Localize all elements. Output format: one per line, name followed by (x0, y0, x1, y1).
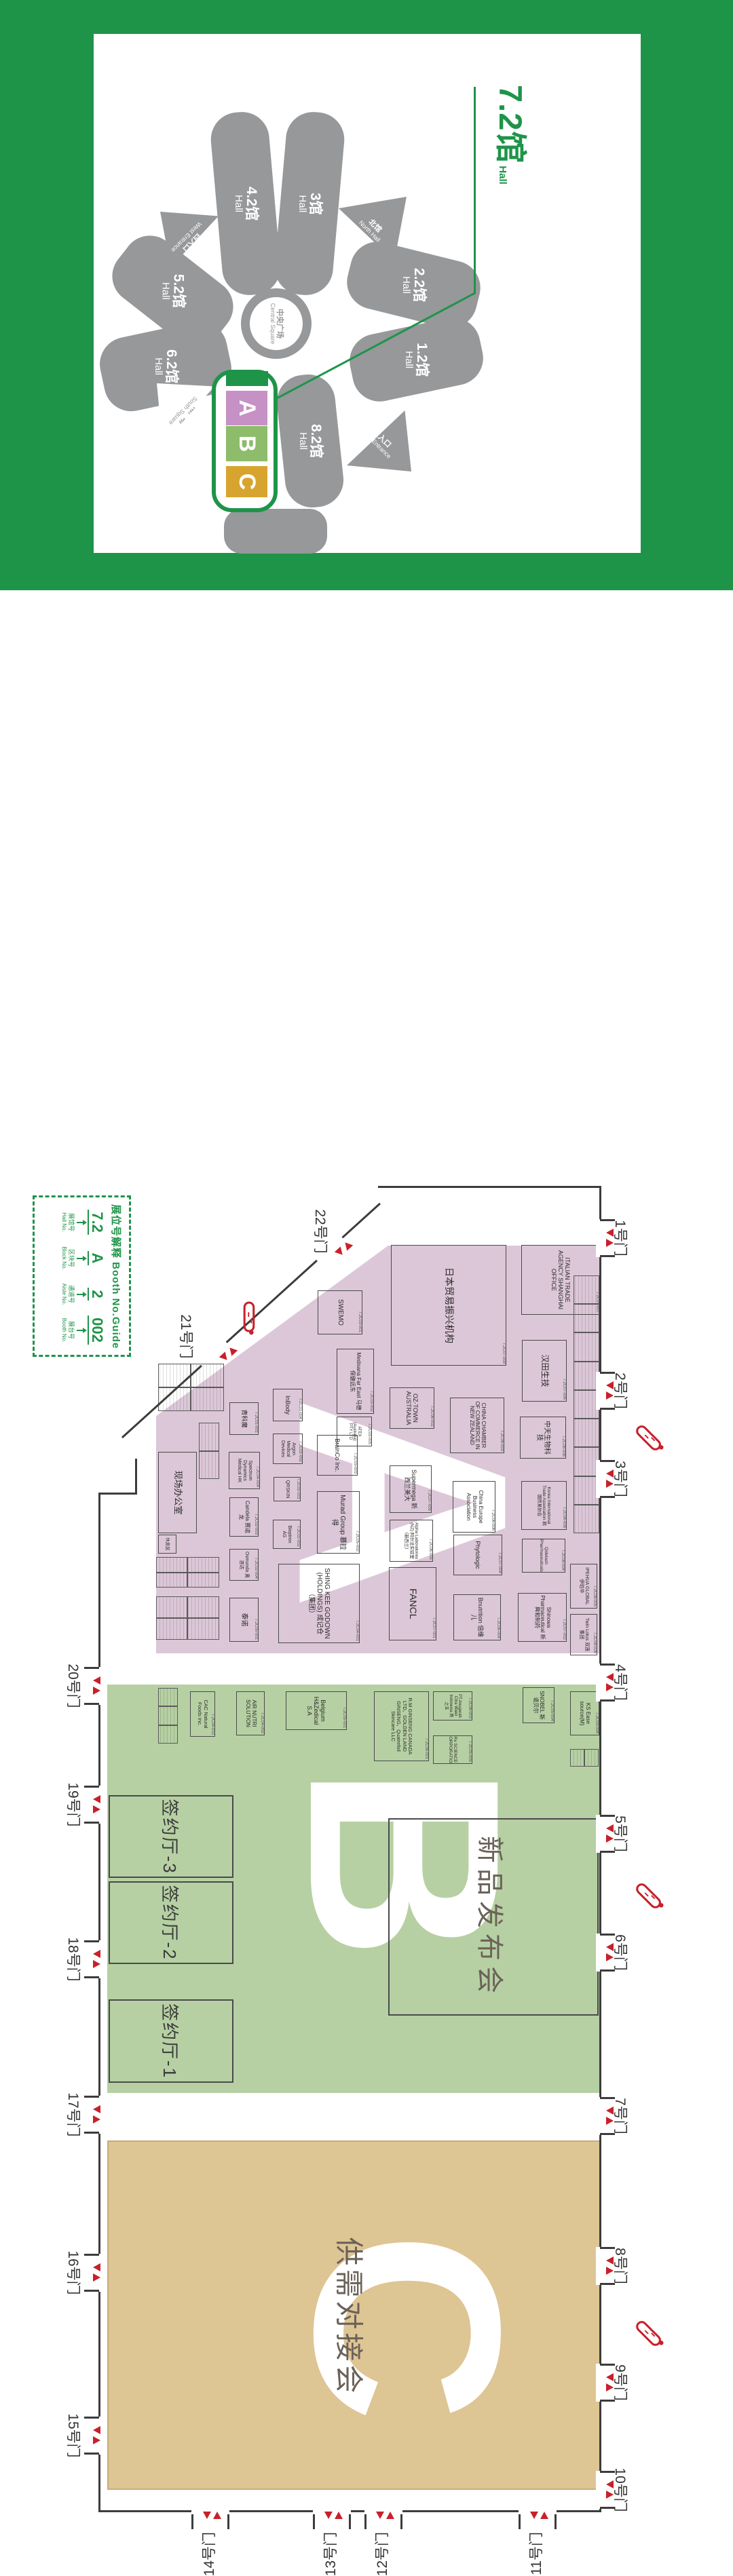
small-booth (188, 1596, 220, 1618)
gate-label: 14号门 (198, 2532, 219, 2576)
gate-label: 5号门 (611, 1815, 631, 1852)
gate-gap (596, 2247, 605, 2285)
booth: AIR NUTRI SOLUTION7.2C04-002 (236, 1691, 265, 1735)
booth-name: Bioptron AG (281, 1520, 293, 1548)
gate-label: 20号门 (64, 1664, 84, 1708)
booth: SWEMO7.2C03-001 (318, 1290, 362, 1334)
hall-title-en: Hall (497, 166, 508, 185)
booth-name: Shinowa Pharmaceutical 新興和制药 (533, 1594, 552, 1641)
booth: Shinowa Pharmaceutical 新興和制药7.2C07-002 (518, 1593, 567, 1642)
booth-number: 7.2C07-001 (432, 1617, 436, 1638)
booth-name: Alpha Laboratories (NZ) 阿尔法实验室（新西兰） (403, 1520, 419, 1561)
gate-gap (596, 2471, 605, 2509)
booth: China Europe Business Association7.2C06-… (453, 1481, 495, 1533)
booth: CAC Natural Foods Inc.7.2C04-010 (190, 1691, 215, 1737)
escalator-icon (634, 1879, 665, 1910)
booth-number: 7.2C01-004 (298, 1398, 302, 1419)
booth-number: 7.2C04-001 (355, 1620, 359, 1641)
small-booth (158, 1688, 178, 1706)
booth: Osmunda 奥咨达7.2C02-004 (229, 1549, 259, 1581)
gate-arrows-icon (93, 2263, 100, 2282)
gate-tick (84, 1667, 99, 1669)
booth-number: 7.2C08-005 (593, 1585, 597, 1607)
small-booth (574, 1332, 599, 1361)
booth-name: Candela 赛诺龙 (238, 1498, 251, 1536)
gate-gap (596, 2364, 605, 2402)
gate-gap (596, 1219, 605, 1257)
booth-number: 7.2C06-006 (491, 1510, 495, 1531)
booth-number: 7.2C06-002 (430, 1406, 434, 1427)
gate-tick (519, 2514, 521, 2529)
booth-number: 7.2C04-010 (210, 1714, 214, 1735)
small-booth (158, 1706, 178, 1725)
legend-title: 展位号解释 Booth No.Guide (109, 1204, 124, 1348)
booth: SNOBEL 斯诺贝尔7.2C05-004 (523, 1687, 555, 1723)
booth: ATEX (Australia) PTY LTD7.2C03-005 (337, 1417, 372, 1446)
booth-name: ATEX (Australia) PTY LTD (347, 1417, 362, 1446)
wall-segment (378, 1186, 601, 1188)
southeast-blob (224, 509, 327, 554)
hall-7-2-entrance-nub (226, 371, 268, 386)
booth: Alpha Laboratories (NZ) 阿尔法实验室（新西兰）7.2C0… (390, 1520, 433, 1562)
wall-segment (98, 1493, 100, 2512)
gate-label: 7号门 (611, 2098, 631, 2134)
gate-label: 15号门 (64, 2413, 84, 2457)
gate-tick (84, 1703, 99, 1705)
small-booth (156, 1573, 188, 1588)
booth-name: Qidelash Pharmaceuticals (538, 1539, 550, 1573)
gate-arrows-icon (93, 1795, 100, 1813)
small-booth (158, 1725, 178, 1744)
gate-label: 6号门 (611, 1934, 631, 1971)
overview-card: 3馆Hall4.2馆Hall2.2馆Hall1.2馆Hall8.2馆Hall5.… (94, 34, 641, 553)
title-underline (474, 87, 476, 294)
small-booth (199, 1451, 219, 1480)
booth-name: CAC Natural Foods Inc. (196, 1692, 209, 1736)
small-booth (574, 1505, 599, 1533)
small-booth (191, 1364, 225, 1387)
gate-tick (84, 1822, 99, 1824)
booth: FANCL7.2C07-001 (389, 1567, 436, 1640)
gate-tick (364, 2514, 366, 2529)
hall-label: 3馆Hall (297, 193, 322, 215)
wall-segment (98, 1493, 137, 1495)
booth: Korea International Trade Association 韩国… (521, 1481, 567, 1530)
gate-arrows-icon (335, 1239, 353, 1257)
booth-name: Murad Group 慕拉得 (330, 1492, 346, 1553)
gate-label: 1号门 (611, 1220, 631, 1256)
gate-arrows-icon (93, 2105, 100, 2123)
gate-label: 18号门 (64, 1937, 84, 1981)
central-square: 中央广场 Central Square (241, 288, 312, 359)
gate-gap (596, 1460, 605, 1498)
booth: 休息区 (158, 1535, 176, 1554)
hall-shape-4.2馆: 4.2馆Hall (208, 110, 282, 297)
booth-name: 中天生物科技 (535, 1417, 551, 1458)
small-booth (574, 1419, 599, 1447)
booth-name: Korea International Trade Association 韩国… (536, 1482, 552, 1529)
booth: 汉田生技7.2C07-006 (522, 1340, 567, 1402)
event-text: 供需对接会 (331, 2237, 372, 2396)
booth: Supermega 新西兰美大7.2C07-005 (390, 1465, 432, 1513)
booth: Bnutrition 倍维儿7.2C06-004 (453, 1594, 501, 1640)
gate-arrows-icon (93, 2426, 100, 2444)
booth-name: Phytologic (474, 1539, 482, 1571)
booth-number: 7.2C03-005 (367, 1423, 371, 1444)
gate-label: 21号门 (176, 1314, 197, 1358)
booth-number: 7.2C01-001 (254, 1412, 258, 1433)
booth-number: 7.2C07-005 (427, 1490, 431, 1511)
entrance-东入口: 东入口East Entrance (347, 410, 411, 472)
gate-arrows-icon (530, 2512, 548, 2519)
booth-name: SNOBEL 斯诺贝尔 (532, 1688, 546, 1723)
booth: Bioptron AG7.2C02-002 (273, 1520, 301, 1549)
booth-name: Rx SCIENCE CORPORATION (447, 1735, 459, 1764)
small-booth (188, 1557, 220, 1573)
booth-number: 7.2C08-006 (561, 1436, 565, 1457)
booth-number: 7.2C03-003 (353, 1453, 357, 1474)
small-booth (156, 1557, 188, 1573)
gate-tick (313, 2514, 315, 2529)
booth-number: 7.2C08-008 (562, 1507, 566, 1528)
booth-name: Spectrum Dynamics Medical HK (236, 1453, 252, 1488)
booth: R.M GINSENG CANADA LTD、GOLDEN LAND GINSE… (374, 1691, 429, 1761)
booth: CHINA CHAMBER OF COMMERCE IN NEW ZEALAND… (450, 1398, 504, 1453)
gate-gap (596, 1664, 605, 1702)
booth: Phytologic7.2C07-004 (453, 1535, 502, 1575)
gate-tick (84, 1976, 99, 1978)
booth-number: 7.2C02-001 (296, 1478, 300, 1499)
booth-number: 7.2C05-004 (550, 1700, 554, 1721)
gate-gap (596, 2097, 605, 2135)
gate-tick (84, 2132, 99, 2134)
booth-number: 7.2C07-009 (502, 1343, 506, 1364)
gate-label: 9号门 (611, 2364, 631, 2401)
overview-zone-badge-A: A (226, 391, 267, 425)
booth-name: China Europe Business Association (464, 1482, 484, 1532)
booth-name: 现场办公室 (172, 1469, 183, 1516)
gate-tick (400, 2514, 402, 2529)
booth-name: ITALIAN TRADE AGENCY SHANGHAI OFFICE (550, 1246, 571, 1314)
booth-number-legend: 展位号解释 Booth No.Guide 7.2展馆号Hall No.A区块号B… (33, 1195, 131, 1357)
small-booth (570, 1749, 584, 1767)
booth-name: Belgium H&Zedical S.A (305, 1692, 327, 1729)
booth-name: 汉田生技 (539, 1353, 549, 1388)
wall-segment (135, 1459, 137, 1495)
booth-number: 7.2C06-003 (468, 1697, 472, 1718)
small-booth (188, 1618, 220, 1640)
gate-label: 10号门 (611, 2467, 631, 2512)
small-booth (156, 1596, 188, 1618)
signing-room: 签约厅-1 (109, 1999, 233, 2083)
booth-number: 7.2C06-001 (424, 1738, 428, 1759)
booth: OZ-TOWN AUSTRALIA7.2C06-002 (390, 1387, 434, 1429)
entrance-label: 南广场South Square (168, 396, 204, 432)
booth-name: Twin Lotus 双莲集团 (578, 1615, 590, 1655)
hall-label: 6.2馆Hall (153, 349, 178, 383)
gate-arrows-icon (93, 1950, 100, 1968)
zone-letter-C: C (276, 2231, 540, 2423)
gate-tick (349, 2514, 351, 2529)
hall-label: 4.2馆Hall (233, 187, 259, 220)
booth-number: 7.2C07-004 (497, 1552, 502, 1573)
hall-label: 2.2馆Hall (401, 268, 427, 302)
booth-number: 7.2C06-005 (428, 1539, 432, 1560)
booth-number: 7.2C03-001 (358, 1311, 362, 1332)
booth-name: 泰诺 (240, 1612, 248, 1628)
booth: Rx SCIENCE CORPORATION7.2C05-005 (433, 1735, 472, 1764)
gate-label: 16号门 (64, 2250, 84, 2294)
entrance-label: 东入口East Entrance (360, 423, 398, 460)
booth-name: Bnutrition 倍维儿 (470, 1595, 485, 1640)
gate-tick (84, 2417, 99, 2419)
hall-shape-1.2馆: 1.2馆Hall (345, 313, 489, 406)
gate-tick (84, 1786, 99, 1788)
booth-number: 7.2C06-003 (500, 1430, 504, 1451)
overview-zone-badge-C: C (226, 466, 267, 497)
overview-section: 3馆Hall4.2馆Hall2.2馆Hall1.2馆Hall8.2馆Hall5.… (0, 0, 733, 590)
entrance-label: 西入口West Entrance (170, 220, 208, 258)
booth: Candela 赛诺龙7.2C02-003 (229, 1497, 259, 1537)
gate-arrows-icon (376, 2512, 394, 2519)
booth-number: 7.2C07-002 (562, 1619, 566, 1640)
gate-tick (84, 2096, 99, 2098)
central-square-label-en: Central Square (269, 303, 276, 345)
booth-number: 7.2C04-002 (260, 1712, 264, 1733)
booth-number: 7.2C05-001 (342, 1707, 346, 1728)
booth-name: Medisana Far East 马德保健远东 (349, 1349, 362, 1413)
booth: 现场办公室 (158, 1452, 197, 1533)
booth-name: 青科魔 (240, 1408, 248, 1429)
booth: 青科魔7.2C01-001 (229, 1402, 259, 1435)
gate-label: 17号门 (64, 2092, 84, 2136)
legend-item-aisle-no-: 2通道号Aisle No. (61, 1276, 105, 1312)
booth-number: 7.2C03-002 (369, 1391, 373, 1412)
gate-label: 12号门 (371, 2532, 392, 2576)
booth-number: 7.2C05-002 (355, 1531, 359, 1552)
booth: PT.Anugerah Citra Walet Indonesia 燕之玉7.2… (433, 1691, 472, 1720)
event-text: 新品发布会 (472, 1836, 512, 1999)
escalator-icon (634, 1421, 665, 1453)
booth: SHING KEE GODOWN (HOLDINGS) 成记仓（集团）7.2C0… (278, 1564, 360, 1643)
gate-tick (555, 2514, 557, 2529)
gate-label: 19号门 (64, 1782, 84, 1826)
small-booth (574, 1275, 599, 1304)
overview-zone-badge-B: B (226, 426, 267, 461)
booth: 日本贸易振兴机构7.2C07-009 (391, 1245, 506, 1366)
small-booth (156, 1618, 188, 1640)
booth: Murad Group 慕拉得7.2C05-002 (317, 1491, 360, 1554)
gate-gap (596, 1372, 605, 1410)
legend-item-hall-no-: 7.2展馆号Hall No. (61, 1204, 105, 1240)
booth-number: 7.2C05-005 (468, 1741, 472, 1762)
booth-number: 7.2C04-004 (255, 1466, 259, 1487)
hall-label: 8.2馆Hall (297, 424, 323, 458)
booth: Twin Lotus 双莲集团7.2C08-026 (570, 1614, 597, 1655)
hall-number-title: 7.2馆 (493, 85, 529, 164)
booth-name: QRSKIN (284, 1479, 290, 1500)
gate-label: 3号门 (611, 1461, 631, 1497)
booth: KS Ease source(M)7.2C03-004 (570, 1691, 599, 1735)
hall-label: 1.2馆Hall (404, 343, 430, 377)
gate-tick (191, 2514, 193, 2529)
booth-number: 7.2C02-003 (254, 1514, 258, 1535)
booth-number: 7.2C05-001 (254, 1619, 258, 1640)
gate-gap (596, 1934, 605, 1972)
booth-name: FANCL (407, 1587, 419, 1620)
booth-name: 日本贸易振兴机构 (443, 1266, 455, 1345)
hall-label: 5.2馆Hall (160, 274, 186, 308)
legend-item-block-no-: A区块号Block No. (61, 1240, 105, 1276)
entrance-label: 北馆North Hall (358, 214, 387, 244)
gate-label: 13号门 (320, 2532, 340, 2576)
booth-number: 7.2C08-004 (561, 1550, 565, 1571)
legend-items: 7.2展馆号Hall No.A区块号Block No.2通道号Aisle No.… (61, 1204, 105, 1348)
booth: 中天生物科技7.2C08-006 (520, 1417, 566, 1459)
gate-tick (84, 2290, 99, 2292)
booth: Belgium H&Zedical S.A7.2C05-001 (286, 1691, 347, 1730)
small-booth (191, 1387, 225, 1411)
wall-diagonal-segment (341, 1203, 381, 1239)
escalator-icon (634, 2317, 665, 2348)
hall-shape-3馆: 3馆Hall (272, 110, 346, 297)
booth-name: KS Ease source(M) (578, 1692, 592, 1735)
booth: InBody7.2C01-004 (273, 1389, 303, 1421)
booth: 泰诺7.2C05-001 (229, 1598, 259, 1642)
booth-number: 7.2C02-002 (296, 1526, 300, 1547)
entrance-南广场: 南广场South Square (157, 383, 214, 444)
gate-label: 4号门 (611, 1664, 631, 1701)
small-booth (188, 1573, 220, 1588)
gate-tick (84, 1940, 99, 1942)
page-title: 7.2馆Hall (495, 85, 527, 185)
booth-name: SHING KEE GODOWN (HOLDINGS) 成记仓（集团） (307, 1564, 331, 1642)
booth-number: 7.2C01-002 (298, 1441, 302, 1462)
booth-name: CHINA CHAMBER OF COMMERCE IN NEW ZEALAND (468, 1398, 487, 1453)
gate-label: 11号门 (525, 2532, 546, 2575)
booth: IPEHUA GLOBAL 伊珀华7.2C08-005 (570, 1564, 597, 1609)
booth-name: PT.Anugerah Citra Walet Indonesia 燕之玉 (443, 1692, 463, 1720)
booth-name: Osmunda 奥咨达 (238, 1550, 250, 1580)
rotated-floorplan-stage: 3馆Hall4.2馆Hall2.2馆Hall1.2馆Hall8.2馆Hall5.… (0, 0, 733, 1955)
booth-number: 7.2C08-026 (593, 1632, 597, 1653)
legend-item-booth-no-: 002展台号Booth No. (61, 1312, 105, 1348)
gate-tick (84, 2254, 99, 2256)
booth-number: 7.2C07-006 (562, 1379, 566, 1400)
gate-arrows-icon (93, 1676, 100, 1695)
booth-name: OZ-TOWN AUSTRALIA (405, 1388, 419, 1428)
gate-label: 8号门 (611, 2248, 631, 2284)
small-booth (584, 1749, 599, 1767)
booth: Medisana Far East 马德保健远东7.2C03-002 (337, 1349, 374, 1414)
gate-arrows-icon (324, 2512, 343, 2519)
booth: Spectrum Dynamics Medical HK7.2C04-004 (229, 1452, 260, 1489)
gate-label: 22号门 (311, 1209, 331, 1253)
small-booth (199, 1423, 219, 1451)
booth: QRSKIN7.2C02-001 (274, 1477, 301, 1501)
booth-name: InBody (284, 1394, 292, 1416)
signing-room: 签约厅-2 (109, 1881, 233, 1964)
booth-name: Argon Medical Devices (279, 1434, 296, 1463)
signing-room: 签约厅-3 (109, 1795, 233, 1878)
hall-shape-2.2馆: 2.2馆Hall (341, 236, 486, 334)
booth: Argon Medical Devices7.2C01-002 (273, 1434, 303, 1464)
booth-number: 7.2C06-004 (496, 1617, 500, 1638)
gate-label: 2号门 (611, 1372, 631, 1409)
small-booth (158, 1364, 191, 1387)
small-booth (574, 1304, 599, 1332)
booth-name: Supermega 新西兰美大 (403, 1466, 418, 1512)
booth-number: 7.2C02-004 (254, 1558, 258, 1579)
gate-tick (84, 2453, 99, 2455)
booth-name: R.M GINSENG CANADA LTD、GOLDEN LAND GINSE… (390, 1692, 414, 1761)
booth-name: IPEHUA GLOBAL 伊珀华 (578, 1564, 590, 1608)
booth: Qidelash Pharmaceuticals7.2C08-004 (522, 1539, 565, 1573)
gate-arrows-icon (203, 2512, 221, 2519)
booth-name: 休息区 (164, 1536, 170, 1552)
gate-gap (596, 1815, 605, 1853)
gate-tick (227, 2514, 229, 2529)
central-square-label-zh: 中央广场 (276, 303, 284, 345)
booth-name: AIR NUTRI SOLUTION (244, 1692, 257, 1735)
booth-number: 7.2C03-004 (595, 1712, 599, 1733)
floorplan-section: ABC 新品发布会供需对接会 签约厅-3签约厅-2签约厅-1 ITALIAN T… (0, 590, 733, 1955)
booth-name: SWEMO (335, 1298, 344, 1327)
